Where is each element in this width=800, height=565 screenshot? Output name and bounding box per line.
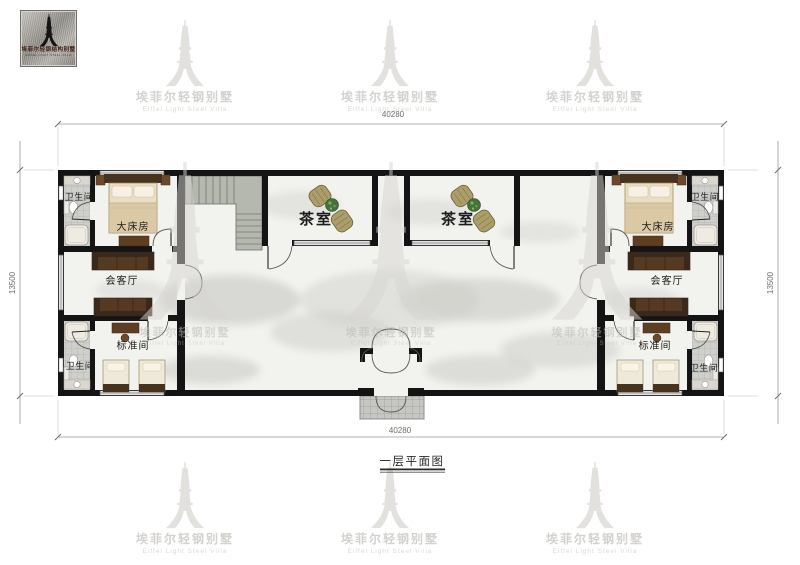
watermark-text-en: Eiffel Light Steel Villa: [100, 341, 270, 347]
toilet-icon: [69, 202, 78, 214]
single-bed: [103, 360, 129, 392]
watermark-text-en: Eiffel Light Steel Villa: [512, 341, 682, 347]
sink-icon: [74, 381, 80, 387]
caption-underline-thin: [380, 472, 445, 473]
caption-underline-thick: [380, 469, 445, 471]
eiffel-tower-icon: [523, 162, 671, 324]
watermark-mid-center: 埃菲尔轻钢别墅 Eiffel Light Steel Villa: [306, 162, 476, 347]
eiffel-tower-icon: [111, 162, 259, 324]
room-label-bath-top-right: 卫生间: [691, 191, 720, 202]
watermark-text-en: Eiffel Light Steel Villa: [306, 341, 476, 347]
eiffel-tower-icon: [34, 14, 64, 47]
dim-width-top: 40280: [382, 110, 405, 119]
entrance-porch: [360, 396, 424, 419]
watermark-mid-right: 埃菲尔轻钢别墅 Eiffel Light Steel Villa: [512, 162, 682, 347]
dim-height-right: 13500: [766, 271, 775, 294]
watermark-text-cn: 埃菲尔轻钢别墅: [100, 324, 270, 340]
dim-height-left: 13500: [8, 271, 17, 294]
room-label-bath-bottom-right: 卫生间: [690, 362, 719, 373]
single-bed: [139, 360, 165, 392]
watermark-text-cn: 埃菲尔轻钢别墅: [306, 324, 476, 340]
logo-text-en: EIFFEL LIGHT STEEL VILLA: [21, 53, 76, 57]
watermark-mid-left: 埃菲尔轻钢别墅 Eiffel Light Steel Villa: [100, 162, 270, 347]
dim-width-bottom: 40280: [389, 426, 412, 435]
company-logo: 埃菲尔轻钢结构别墅 EIFFEL LIGHT STEEL VILLA: [20, 10, 77, 67]
eiffel-tower-icon: [317, 162, 465, 324]
room-label-bath-bottom-left: 卫生间: [66, 360, 95, 371]
caption-text: 一层平面图: [380, 455, 445, 468]
watermark-text-cn: 埃菲尔轻钢别墅: [512, 324, 682, 340]
room-label-bath-top-left: 卫生间: [65, 191, 94, 202]
toilet-tank: [64, 201, 69, 214]
plan-caption: 一层平面图: [380, 455, 446, 473]
sink-icon: [74, 177, 80, 183]
